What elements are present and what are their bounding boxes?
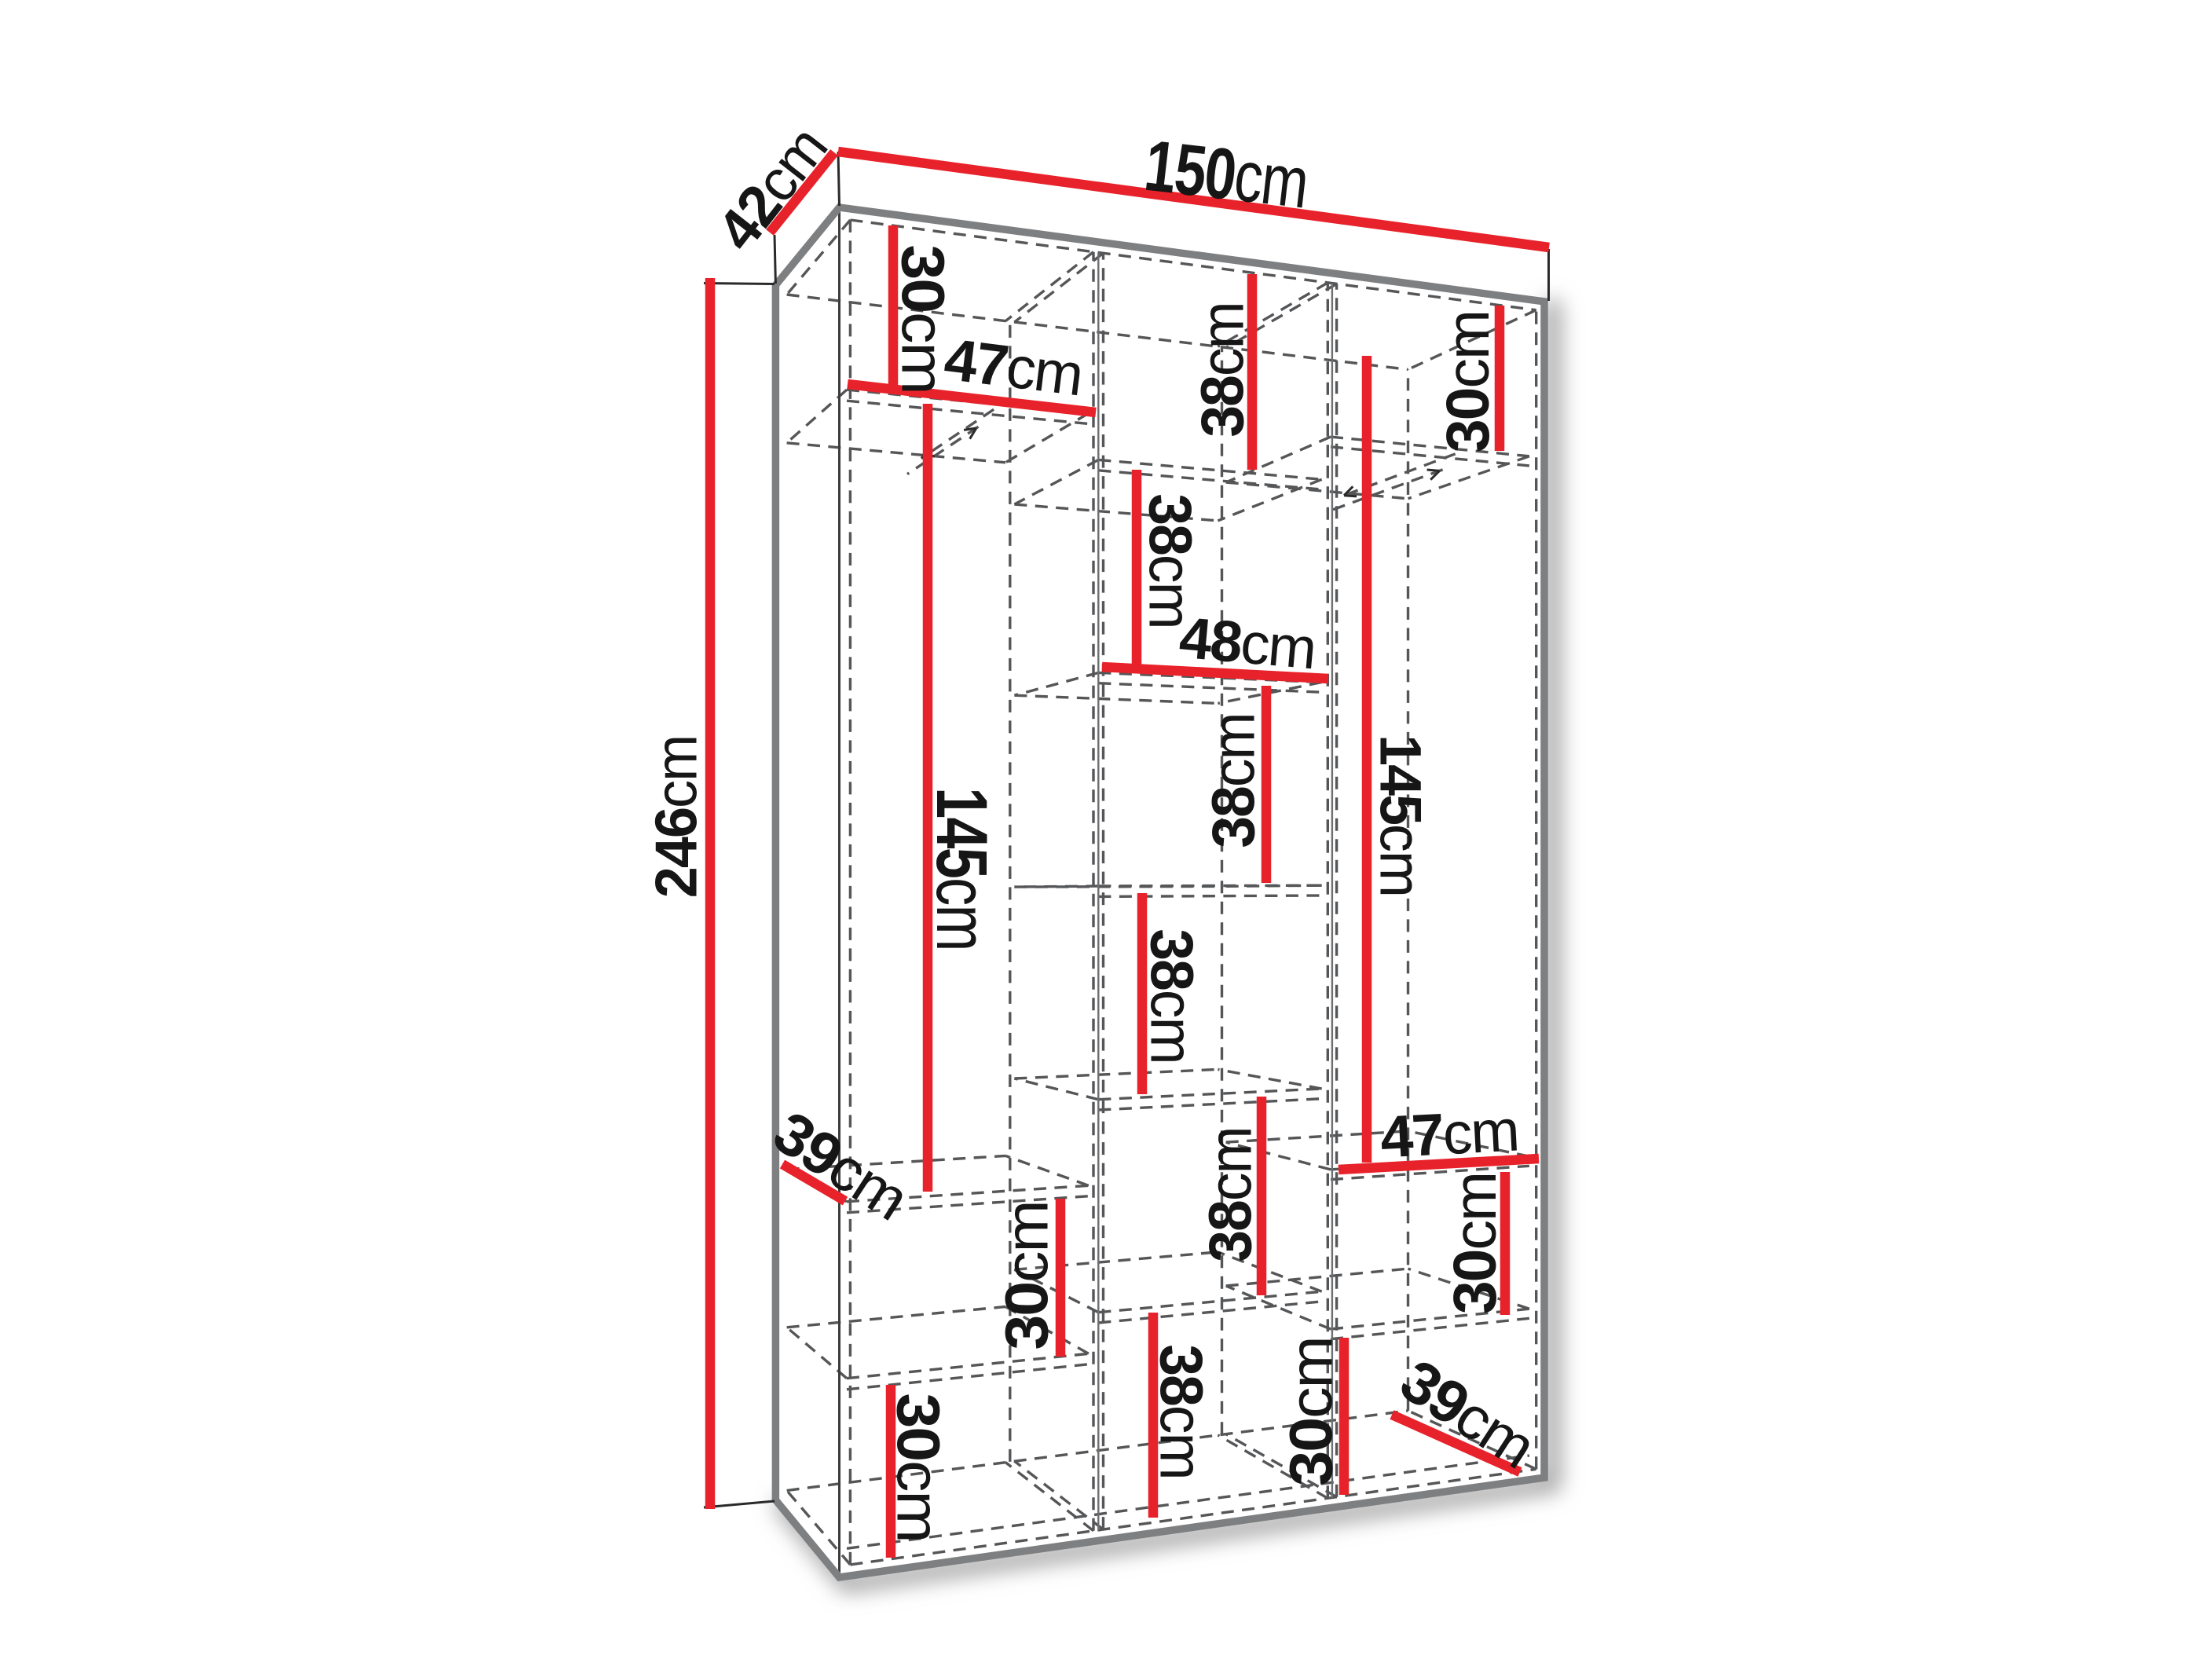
svg-text:38cm: 38cm <box>1199 713 1267 848</box>
svg-text:150cm: 150cm <box>1141 125 1312 223</box>
svg-text:145cm: 145cm <box>921 787 1002 950</box>
svg-text:30cm: 30cm <box>884 1393 952 1541</box>
svg-text:145cm: 145cm <box>1368 734 1433 896</box>
svg-text:30cm: 30cm <box>1277 1337 1345 1485</box>
svg-text:48cm: 48cm <box>1177 604 1318 681</box>
svg-text:30cm: 30cm <box>993 1201 1060 1350</box>
svg-text:246cm: 246cm <box>643 736 709 898</box>
svg-text:30cm: 30cm <box>1434 311 1502 452</box>
svg-text:38cm: 38cm <box>1188 302 1256 437</box>
svg-text:38cm: 38cm <box>1138 928 1206 1063</box>
svg-text:30cm: 30cm <box>1441 1173 1509 1314</box>
svg-text:38cm: 38cm <box>1196 1127 1264 1262</box>
svg-text:47cm: 47cm <box>1379 1097 1520 1170</box>
svg-text:38cm: 38cm <box>1148 1344 1215 1478</box>
